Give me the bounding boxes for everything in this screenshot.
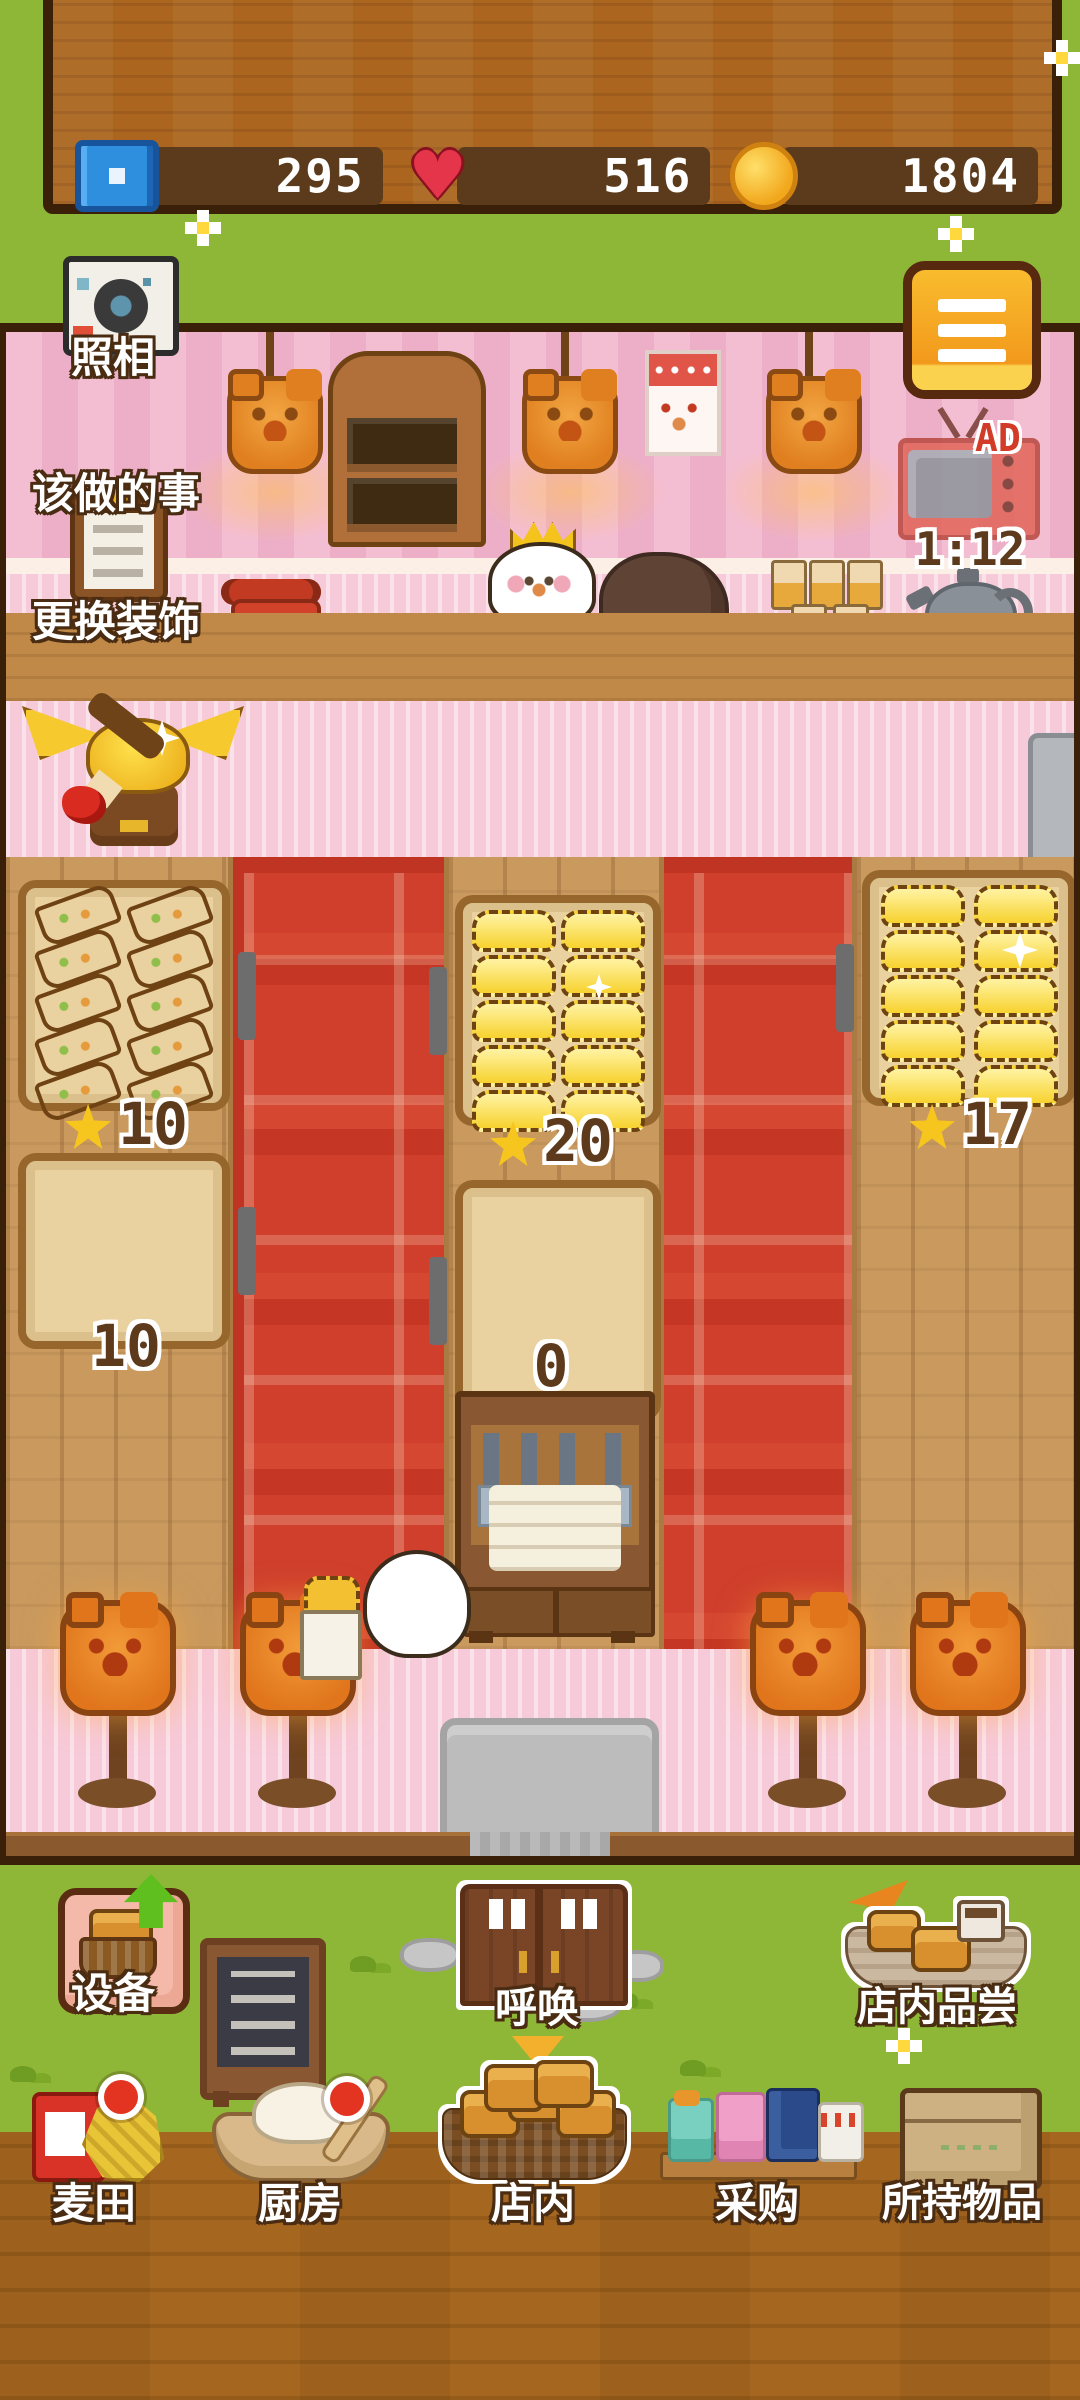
- flower-decor: [197, 222, 209, 234]
- muffin-item: [974, 1020, 1058, 1062]
- wheat-notification-badge: [104, 2080, 138, 2114]
- kitchen-notification-badge: [330, 2082, 364, 2116]
- dough-stack: [489, 1485, 621, 1571]
- sandwich-tray: [32, 892, 216, 1099]
- door-knob: [551, 1951, 559, 1973]
- customer-character[interactable]: [363, 1550, 471, 1658]
- muffin-item: [881, 975, 965, 1017]
- hearts-stat[interactable]: ♥ 516: [403, 140, 711, 212]
- muffin-item: [561, 955, 645, 997]
- door-window: [561, 1899, 575, 1929]
- bottle-icon: [716, 2092, 766, 2162]
- muffin-item: [974, 885, 1058, 927]
- grass-tuft: [680, 2060, 706, 2076]
- bear-lamp-icon: [522, 376, 618, 474]
- torch-base: [928, 1778, 1006, 1808]
- hamburger-menu-icon: [938, 299, 1006, 312]
- table-handle: [836, 944, 854, 1032]
- decorate-label: 更换装饰: [0, 600, 246, 644]
- torch-base: [258, 1778, 336, 1808]
- inventory-label: 所持物品: [842, 2182, 1080, 2224]
- star-icon: [908, 1104, 956, 1152]
- flower-decor: [1056, 52, 1068, 64]
- bottle-cap: [674, 2090, 700, 2106]
- muffin-item: [472, 910, 556, 952]
- shopkeeper-face: [506, 572, 572, 602]
- currency-sign: 295 ♥ 516 1804: [43, 0, 1062, 214]
- coin-icon: [730, 142, 798, 210]
- wheat-field-label: 麦田: [14, 2182, 174, 2226]
- table-handle: [238, 1207, 256, 1295]
- table-handle: [429, 1257, 447, 1345]
- tv-antenna: [937, 407, 960, 439]
- decorate-button[interactable]: [62, 742, 172, 828]
- gray-fridge: [1028, 733, 1074, 869]
- poster-cat-face: [657, 396, 701, 436]
- call-label: 呼唤: [437, 1986, 637, 2030]
- bottle-icon: [766, 2088, 820, 2162]
- inventory-box-icon[interactable]: [900, 2088, 1042, 2190]
- tasting-button[interactable]: [845, 1898, 1025, 1990]
- muffin-item: [472, 955, 556, 997]
- table-handle: [238, 952, 256, 1040]
- knife-icon: [521, 1433, 537, 1489]
- star-icon: [64, 1104, 112, 1152]
- muffin-item: [472, 1045, 556, 1087]
- game-screen: 295 ♥ 516 1804: [0, 0, 1080, 2400]
- stone-decor: [400, 1938, 460, 1972]
- bear-torch-icon: [60, 1600, 176, 1716]
- left-display-table[interactable]: [18, 880, 230, 1111]
- cabinet-shelf: [347, 478, 457, 532]
- center-display-rating: 20: [461, 1107, 641, 1175]
- muffin-item: [561, 1045, 645, 1087]
- ad-badge: AD: [975, 416, 1021, 460]
- torch-base: [768, 1778, 846, 1808]
- muffin-item: [472, 1000, 556, 1042]
- heart-icon: ♥: [403, 146, 473, 206]
- bread-cabinet: [328, 351, 486, 547]
- muffin-item: [881, 930, 965, 972]
- coins-value: 1804: [901, 149, 1020, 203]
- in-store-button[interactable]: [442, 2064, 627, 2180]
- star-icon: [489, 1121, 537, 1169]
- muffin-item: [881, 1020, 965, 1062]
- lamp-cord: [266, 332, 274, 380]
- kitchen-label: 厨房: [220, 2182, 380, 2226]
- tickets-value: 295: [276, 149, 365, 203]
- center-prep-count: 0: [476, 1332, 626, 1400]
- left-display-rating: 10: [36, 1090, 216, 1158]
- tickets-stat[interactable]: 295: [75, 140, 383, 212]
- menu-board-text: [217, 1957, 309, 2067]
- bottle-icon: [818, 2102, 864, 2162]
- door-window: [489, 1899, 503, 1929]
- muffin-item: [974, 975, 1058, 1017]
- muffin-item: [881, 885, 965, 927]
- cat-poster: [645, 350, 721, 456]
- lamp-cord: [805, 332, 813, 380]
- hamburger-menu-button[interactable]: [903, 261, 1041, 399]
- flower-decor: [950, 228, 962, 240]
- muffin-item: [561, 1000, 645, 1042]
- prep-station[interactable]: [455, 1391, 655, 1643]
- purchase-button[interactable]: [660, 2090, 855, 2182]
- takeout-bag: [300, 1576, 360, 1676]
- stats-row: 295 ♥ 516 1804: [75, 140, 1038, 212]
- right-display-rating: 17: [880, 1090, 1060, 1158]
- poster-title-band: [649, 354, 717, 386]
- grass-tuft: [350, 1956, 376, 1972]
- grass-tuft: [10, 2066, 36, 2082]
- bear-lamp-icon: [227, 376, 323, 474]
- knife-icon: [559, 1433, 575, 1489]
- bear-lamp-icon: [766, 376, 862, 474]
- knife-icon: [483, 1433, 499, 1489]
- in-store-label: 店内: [453, 2182, 613, 2226]
- cabinet-shelf: [347, 418, 457, 472]
- muffin-item: [561, 910, 645, 952]
- table-handle: [429, 967, 447, 1055]
- left-prep-count: 10: [36, 1312, 216, 1380]
- photo-label: 照相: [33, 336, 193, 380]
- purchase-label: 采购: [677, 2182, 837, 2226]
- door-knob: [519, 1951, 527, 1973]
- coffee-cup-icon: [957, 1900, 1005, 1942]
- flower-decor: [898, 2040, 910, 2052]
- bear-torch-icon: [750, 1600, 866, 1716]
- ad-timer: 1:12: [910, 522, 1030, 576]
- knife-icon: [605, 1433, 621, 1489]
- equipment-label: 设备: [33, 1972, 193, 2016]
- bottle-icon: [668, 2098, 714, 2162]
- ticket-icon: [75, 140, 159, 212]
- hearts-value: 516: [603, 149, 692, 203]
- muffin-tray: [469, 907, 647, 1114]
- center-display-table[interactable]: [455, 895, 661, 1126]
- todo-label: 该做的事: [0, 472, 246, 516]
- right-display-table[interactable]: [862, 870, 1074, 1106]
- coins-stat[interactable]: 1804: [730, 140, 1038, 212]
- lamp-cord: [561, 332, 569, 380]
- torch-base: [78, 1778, 156, 1808]
- station-drawers: [463, 1587, 655, 1637]
- bear-torch-icon: [910, 1600, 1026, 1716]
- shopkeeper-character[interactable]: [488, 520, 594, 616]
- muffin-tray: [876, 882, 1062, 1094]
- stone-path: [470, 1832, 610, 1856]
- menu-board[interactable]: [200, 1938, 326, 2100]
- tasting-label: 店内品尝: [817, 1986, 1057, 2028]
